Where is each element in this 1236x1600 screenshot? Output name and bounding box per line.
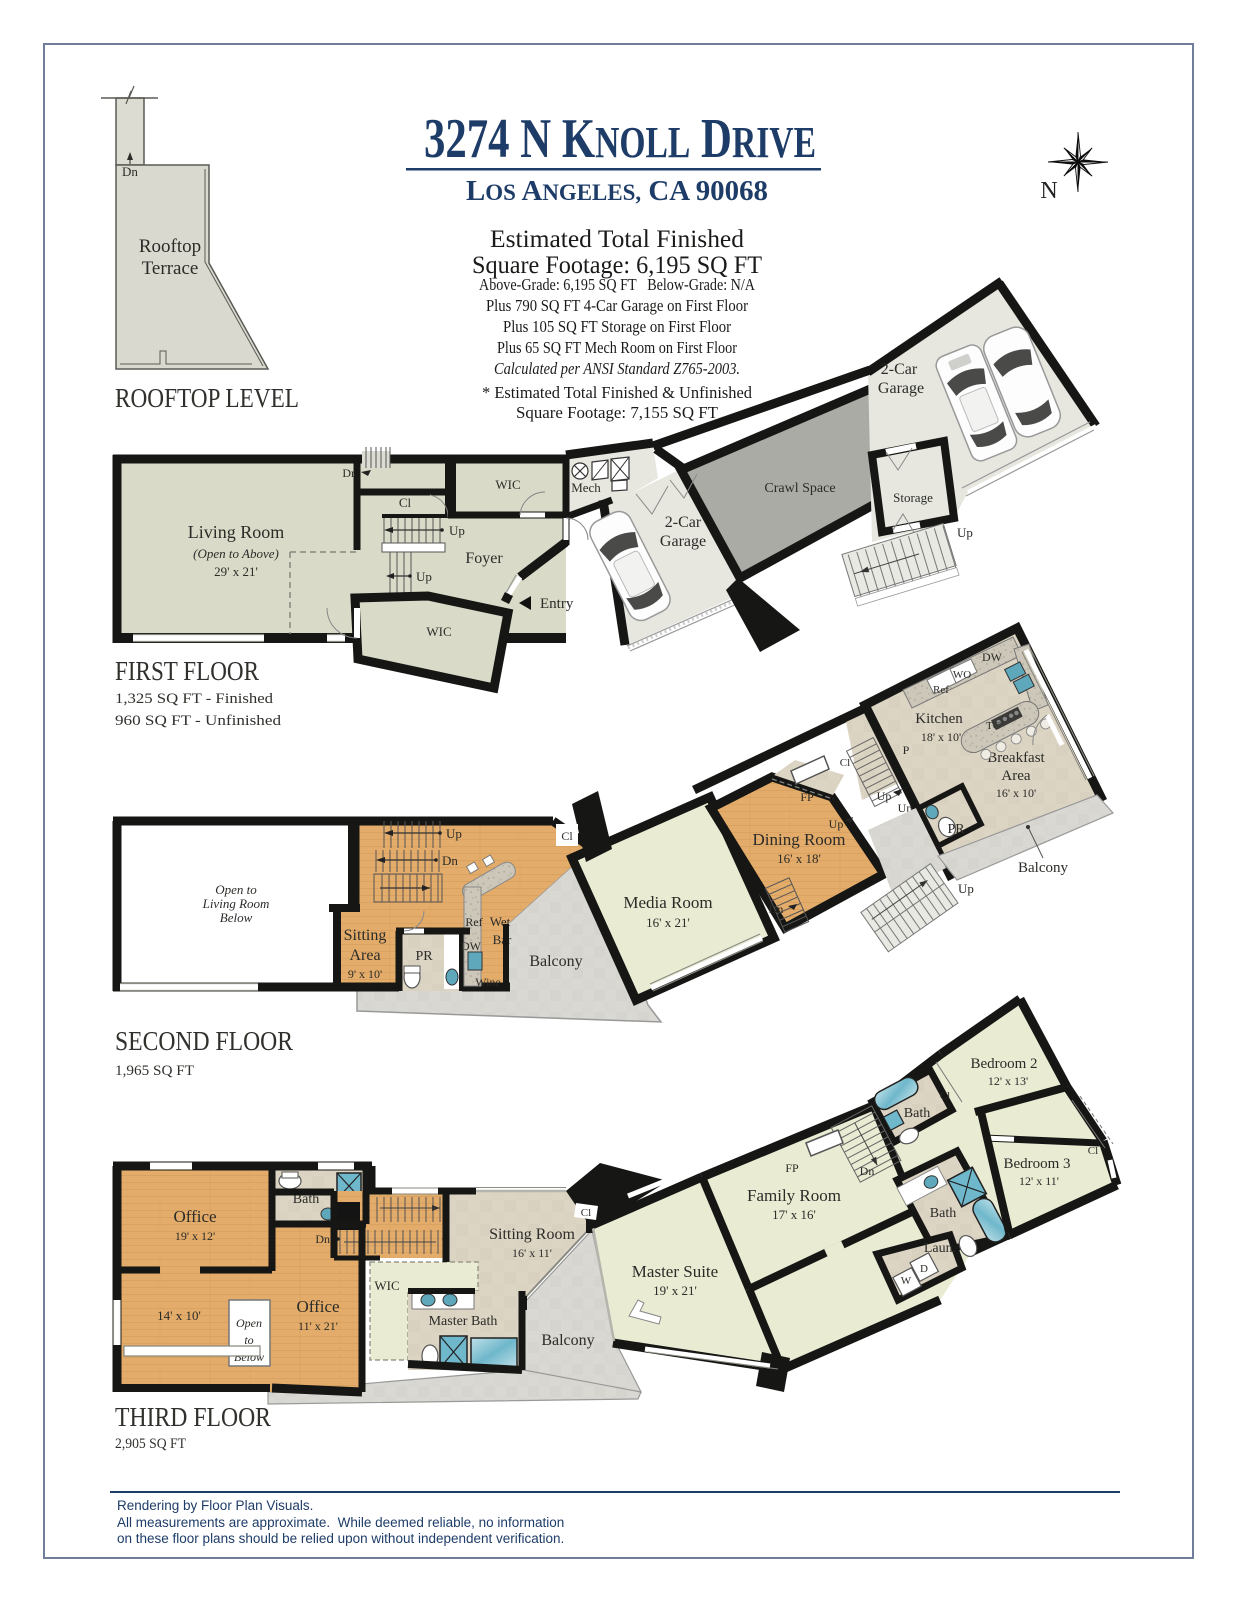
- svg-text:Up: Up: [957, 525, 973, 540]
- svg-text:Living Room: Living Room: [188, 522, 285, 542]
- svg-text:WIC: WIC: [426, 624, 451, 639]
- svg-text:Balcony: Balcony: [1018, 860, 1068, 876]
- svg-text:11' x 21': 11' x 21': [298, 1319, 338, 1333]
- svg-text:Dn: Dn: [769, 902, 784, 916]
- svg-text:Storage: Storage: [893, 490, 933, 505]
- svg-text:Below: Below: [220, 910, 253, 925]
- svg-text:16' x 21': 16' x 21': [646, 915, 690, 930]
- svg-text:Bath: Bath: [904, 1106, 930, 1121]
- svg-text:Bath: Bath: [930, 1206, 956, 1221]
- svg-text:WO: WO: [953, 669, 971, 681]
- svg-text:Balcony: Balcony: [541, 1332, 594, 1349]
- svg-text:Ref: Ref: [933, 684, 949, 696]
- svg-text:Terrace: Terrace: [142, 258, 199, 279]
- svg-text:Bedroom 2: Bedroom 2: [970, 1056, 1037, 1072]
- svg-text:16' x 18': 16' x 18': [777, 851, 821, 866]
- svg-text:Garage: Garage: [660, 533, 706, 550]
- svg-text:Area: Area: [1001, 768, 1030, 784]
- svg-text:Entry: Entry: [540, 596, 574, 612]
- svg-text:W: W: [901, 1275, 912, 1287]
- svg-text:Up: Up: [446, 826, 462, 841]
- svg-text:Bar: Bar: [493, 932, 512, 947]
- svg-text:TC: TC: [986, 720, 1000, 732]
- svg-text:2,905 SQ FT: 2,905 SQ FT: [115, 1436, 186, 1452]
- svg-text:Up: Up: [877, 789, 892, 803]
- svg-text:to: to: [244, 1333, 253, 1347]
- svg-text:Up: Up: [416, 569, 432, 584]
- svg-text:Up: Up: [449, 523, 465, 538]
- svg-text:19' x 12': 19' x 12': [175, 1229, 215, 1243]
- svg-text:Master Bath: Master Bath: [429, 1314, 498, 1329]
- svg-text:14' x 10': 14' x 10': [157, 1308, 201, 1323]
- svg-text:Area: Area: [349, 947, 380, 964]
- svg-text:Crawl Space: Crawl Space: [764, 481, 835, 496]
- svg-text:Ref: Ref: [465, 915, 482, 929]
- svg-text:Dn: Dn: [122, 164, 138, 179]
- svg-text:2-Car: 2-Car: [881, 361, 918, 378]
- svg-text:Wine: Wine: [475, 975, 501, 989]
- svg-text:DW: DW: [461, 939, 482, 953]
- svg-text:Kitchen: Kitchen: [915, 711, 963, 727]
- svg-text:Media Room: Media Room: [623, 893, 712, 912]
- svg-text:Open to: Open to: [215, 882, 257, 897]
- svg-text:Dn: Dn: [860, 1164, 875, 1178]
- svg-text:Dn: Dn: [442, 853, 458, 868]
- svg-text:(Open to Above): (Open to Above): [193, 546, 279, 561]
- svg-text:SECOND FLOOR: SECOND FLOOR: [115, 1026, 293, 1056]
- svg-text:19' x 21': 19' x 21': [653, 1283, 697, 1298]
- svg-text:Up: Up: [829, 817, 844, 831]
- svg-text:FP: FP: [800, 790, 814, 804]
- svg-text:Living Room: Living Room: [202, 896, 270, 911]
- svg-text:Sitting: Sitting: [344, 927, 387, 944]
- svg-text:16' x 10': 16' x 10': [996, 786, 1036, 800]
- svg-text:Cl: Cl: [840, 757, 850, 769]
- svg-text:Breakfast: Breakfast: [987, 750, 1045, 766]
- svg-text:DW: DW: [982, 650, 1003, 664]
- svg-text:PR: PR: [947, 822, 965, 837]
- svg-text:1,325 SQ FT - Finished: 1,325 SQ FT - Finished: [115, 691, 274, 707]
- svg-text:9' x 10': 9' x 10': [348, 967, 382, 981]
- svg-text:Dn: Dn: [315, 1232, 330, 1246]
- svg-text:16' x 11': 16' x 11': [512, 1246, 552, 1260]
- svg-text:12' x 13': 12' x 13': [988, 1074, 1028, 1088]
- svg-text:Cl: Cl: [1088, 1145, 1098, 1157]
- svg-text:17' x 16': 17' x 16': [772, 1207, 816, 1222]
- svg-text:Bedroom 3: Bedroom 3: [1003, 1156, 1070, 1172]
- svg-text:Office: Office: [173, 1207, 216, 1226]
- svg-text:Cl: Cl: [940, 1090, 950, 1102]
- svg-text:Cl: Cl: [581, 1207, 591, 1219]
- svg-text:FP: FP: [785, 1161, 799, 1175]
- svg-text:Up: Up: [958, 881, 974, 896]
- svg-text:Sitting Room: Sitting Room: [489, 1226, 575, 1243]
- svg-text:PR: PR: [415, 949, 433, 964]
- svg-text:Open: Open: [236, 1316, 262, 1330]
- svg-text:Foyer: Foyer: [465, 550, 503, 567]
- svg-text:29' x 21': 29' x 21': [214, 564, 258, 579]
- svg-text:WIC: WIC: [374, 1278, 399, 1293]
- svg-text:N: N: [1040, 178, 1057, 204]
- svg-text:Cl: Cl: [399, 495, 412, 510]
- svg-text:960 SQ FT - Unfinished: 960 SQ FT - Unfinished: [115, 713, 282, 729]
- svg-text:P: P: [903, 743, 910, 757]
- svg-text:D: D: [920, 1263, 928, 1275]
- svg-text:1,965 SQ FT: 1,965 SQ FT: [115, 1063, 194, 1079]
- svg-text:ROOFTOP LEVEL: ROOFTOP LEVEL: [115, 383, 299, 413]
- svg-text:Office: Office: [296, 1297, 339, 1316]
- svg-text:Dining Room: Dining Room: [752, 830, 845, 849]
- svg-text:WIC: WIC: [495, 477, 520, 492]
- svg-text:Family Room: Family Room: [747, 1186, 841, 1205]
- svg-text:Rooftop: Rooftop: [139, 236, 201, 257]
- svg-text:FIRST FLOOR: FIRST FLOOR: [115, 656, 259, 686]
- svg-text:Balcony: Balcony: [529, 953, 582, 970]
- svg-text:18' x 10': 18' x 10': [921, 730, 961, 744]
- svg-text:THIRD FLOOR: THIRD FLOOR: [115, 1402, 271, 1432]
- svg-text:Master Suite: Master Suite: [632, 1262, 718, 1281]
- svg-text:Garage: Garage: [878, 380, 924, 397]
- svg-text:Mech: Mech: [571, 480, 601, 495]
- svg-text:2-Car: 2-Car: [665, 514, 702, 531]
- svg-text:Cl: Cl: [561, 829, 573, 843]
- svg-text:12' x 11': 12' x 11': [1019, 1174, 1059, 1188]
